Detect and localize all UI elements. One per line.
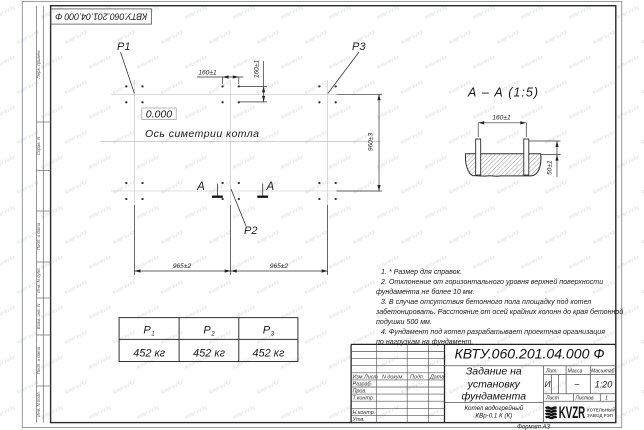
svg-text:Лист: Лист [545,396,559,402]
svg-text:960±3: 960±3 [368,133,375,152]
svg-text:kotel-kv.kz: kotel-kv.kz [304,79,329,95]
svg-text:kotel-kv.kz: kotel-kv.kz [256,29,281,45]
svg-text:kotel-kv.kz: kotel-kv.kz [424,104,449,120]
svg-text:kotel-kv.kz: kotel-kv.kz [352,179,377,195]
svg-text:Ось симетрии котла: Ось симетрии котла [145,128,259,140]
svg-text:kotel-kv.kz: kotel-kv.kz [424,54,449,70]
svg-text:kotel-kv.kz: kotel-kv.kz [304,179,329,195]
svg-text:kotel-kv.kz: kotel-kv.kz [280,404,305,420]
svg-text:kotel-kv.kz: kotel-kv.kz [40,204,65,220]
svg-text:kotel-kv.kz: kotel-kv.kz [640,179,644,195]
svg-text:kotel-kv.kz: kotel-kv.kz [40,254,65,270]
svg-text:Формат А3: Формат А3 [517,424,550,430]
svg-text:kotel-kv.kz: kotel-kv.kz [184,54,209,70]
svg-text:kotel-kv.kz: kotel-kv.kz [40,104,65,120]
svg-text:kotel-kv.kz: kotel-kv.kz [16,329,41,345]
svg-text:kotel-kv.kz: kotel-kv.kz [616,404,641,420]
svg-text:kotel-kv.kz: kotel-kv.kz [0,104,17,120]
svg-text:kotel-kv.kz: kotel-kv.kz [328,404,353,420]
svg-text:kotel-kv.kz: kotel-kv.kz [304,29,329,45]
svg-text:kotel-kv.kz: kotel-kv.kz [328,154,353,170]
svg-text:Масса: Масса [568,368,583,374]
svg-text:kotel-kv.kz: kotel-kv.kz [424,204,449,220]
svg-text:kotel-kv.kz: kotel-kv.kz [448,179,473,195]
svg-text:kotel-kv.kz: kotel-kv.kz [160,229,185,245]
svg-text:Р: Р [263,325,271,337]
svg-text:kotel-kv.kz: kotel-kv.kz [520,4,545,20]
svg-text:Задание на: Задание на [466,366,522,378]
svg-text:kotel-kv.kz: kotel-kv.kz [544,79,569,95]
svg-text:kotel-kv.kz: kotel-kv.kz [256,229,281,245]
svg-text:kotel-kv.kz: kotel-kv.kz [640,129,644,145]
svg-text:kotel-kv.kz: kotel-kv.kz [304,129,329,145]
svg-text:установку: установку [467,379,521,391]
svg-text:kotel-kv.kz: kotel-kv.kz [376,104,401,120]
svg-text:kotel-kv.kz: kotel-kv.kz [160,29,185,45]
svg-text:КОТЕЛЬНЫЙ: КОТЕЛЬНЫЙ [587,408,616,413]
svg-text:Инв. N подл.: Инв. N подл. [36,391,41,417]
svg-text:kotel-kv.kz: kotel-kv.kz [592,179,617,195]
svg-text:kotel-kv.kz: kotel-kv.kz [568,254,593,270]
svg-text:kotel-kv.kz: kotel-kv.kz [616,354,641,370]
svg-text:kotel-kv.kz: kotel-kv.kz [328,254,353,270]
svg-text:KVZR: KVZR [559,404,586,422]
svg-text:Листов: Листов [574,396,594,402]
svg-text:kotel-kv.kz: kotel-kv.kz [496,29,521,45]
svg-text:kotel-kv.kz: kotel-kv.kz [232,4,257,20]
svg-text:kotel-kv.kz: kotel-kv.kz [520,104,545,120]
svg-text:kotel-kv.kz: kotel-kv.kz [88,54,113,70]
svg-text:kotel-kv.kz: kotel-kv.kz [208,279,233,295]
svg-text:kotel-kv.kz: kotel-kv.kz [232,104,257,120]
svg-text:kotel-kv.kz: kotel-kv.kz [448,229,473,245]
svg-text:kotel-kv.kz: kotel-kv.kz [64,279,89,295]
svg-text:подушки 500 мм.: подушки 500 мм. [376,318,432,326]
svg-text:kotel-kv.kz: kotel-kv.kz [496,179,521,195]
svg-text:kotel-kv.kz: kotel-kv.kz [400,229,425,245]
svg-text:kotel-kv.kz: kotel-kv.kz [40,304,65,320]
svg-text:kotel-kv.kz: kotel-kv.kz [472,54,497,70]
svg-text:kotel-kv.kz: kotel-kv.kz [400,79,425,95]
svg-text:kotel-kv.kz: kotel-kv.kz [208,79,233,95]
svg-text:0.000: 0.000 [146,109,172,121]
svg-text:kotel-kv.kz: kotel-kv.kz [208,29,233,45]
svg-text:452 кг: 452 кг [252,348,285,360]
svg-text:kotel-kv.kz: kotel-kv.kz [160,79,185,95]
svg-text:А – А (1:5): А – А (1:5) [467,86,538,100]
svg-text:kotel-kv.kz: kotel-kv.kz [136,154,161,170]
svg-text:1: 1 [605,396,608,402]
svg-text:Масштаб: Масштаб [591,368,615,374]
svg-text:А: А [265,181,274,193]
svg-text:Инв. N дубл.: Инв. N дубл. [36,267,41,292]
svg-text:Разраб.: Разраб. [353,381,373,387]
svg-text:kotel-kv.kz: kotel-kv.kz [232,204,257,220]
svg-text:kotel-kv.kz: kotel-kv.kz [160,279,185,295]
svg-text:kotel-kv.kz: kotel-kv.kz [208,379,233,395]
svg-text:kotel-kv.kz: kotel-kv.kz [520,204,545,220]
svg-text:kotel-kv.kz: kotel-kv.kz [472,204,497,220]
svg-text:kotel-kv.kz: kotel-kv.kz [256,279,281,295]
svg-text:kotel-kv.kz: kotel-kv.kz [232,304,257,320]
svg-text:КВр-0,1 К (К): КВр-0,1 К (К) [475,413,512,420]
svg-text:kotel-kv.kz: kotel-kv.kz [0,304,17,320]
svg-text:kotel-kv.kz: kotel-kv.kz [280,304,305,320]
svg-text:kotel-kv.kz: kotel-kv.kz [640,379,644,395]
svg-text:kotel-kv.kz: kotel-kv.kz [616,204,641,220]
svg-text:kotel-kv.kz: kotel-kv.kz [616,104,641,120]
svg-text:Р3: Р3 [352,41,366,53]
svg-text:kotel-kv.kz: kotel-kv.kz [544,29,569,45]
svg-text:Справ. N: Справ. N [36,136,41,155]
svg-text:4. Фундамент под котел разраба: 4. Фундамент под котел разрабатывает про… [381,328,605,336]
svg-text:kotel-kv.kz: kotel-kv.kz [64,129,89,145]
svg-text:2. Отклонение от горизонтально: 2. Отклонение от горизонтального уровня … [380,278,603,286]
svg-text:kotel-kv.kz: kotel-kv.kz [112,79,137,95]
svg-text:kotel-kv.kz: kotel-kv.kz [376,4,401,20]
svg-text:Т.контр.: Т.контр. [353,396,375,402]
svg-text:kotel-kv.kz: kotel-kv.kz [280,4,305,20]
svg-text:Р: Р [203,325,211,337]
svg-text:1:20: 1:20 [595,379,613,389]
svg-text:Р2: Р2 [244,225,257,237]
svg-text:kotel-kv.kz: kotel-kv.kz [304,329,329,345]
svg-text:kotel-kv.kz: kotel-kv.kz [0,354,17,370]
svg-text:kotel-kv.kz: kotel-kv.kz [0,204,17,220]
svg-text:kotel-kv.kz: kotel-kv.kz [0,404,17,420]
svg-text:kotel-kv.kz: kotel-kv.kz [376,54,401,70]
svg-text:kotel-kv.kz: kotel-kv.kz [232,254,257,270]
svg-text:kotel-kv.kz: kotel-kv.kz [472,254,497,270]
svg-text:kotel-kv.kz: kotel-kv.kz [400,179,425,195]
svg-text:1: 1 [151,332,154,338]
svg-text:kotel-kv.kz: kotel-kv.kz [352,279,377,295]
svg-text:kotel-kv.kz: kotel-kv.kz [328,54,353,70]
svg-text:kotel-kv.kz: kotel-kv.kz [568,204,593,220]
svg-text:kotel-kv.kz: kotel-kv.kz [160,179,185,195]
svg-text:kotel-kv.kz: kotel-kv.kz [640,229,644,245]
svg-text:kotel-kv.kz: kotel-kv.kz [0,254,17,270]
svg-text:kotel-kv.kz: kotel-kv.kz [136,54,161,70]
svg-text:kotel-kv.kz: kotel-kv.kz [256,379,281,395]
svg-text:kotel-kv.kz: kotel-kv.kz [232,154,257,170]
svg-text:kotel-kv.kz: kotel-kv.kz [376,154,401,170]
svg-text:И: И [544,379,551,389]
svg-text:kotel-kv.kz: kotel-kv.kz [64,379,89,395]
svg-text:kotel-kv.kz: kotel-kv.kz [64,179,89,195]
svg-text:забетонировать. Расстояние от: забетонировать. Расстояние от осей крайн… [375,308,623,316]
svg-text:kotel-kv.kz: kotel-kv.kz [304,229,329,245]
svg-text:kotel-kv.kz: kotel-kv.kz [0,4,17,20]
svg-text:kotel-kv.kz: kotel-kv.kz [136,304,161,320]
svg-text:Р1: Р1 [117,41,130,53]
svg-text:kotel-kv.kz: kotel-kv.kz [88,154,113,170]
svg-text:kotel-kv.kz: kotel-kv.kz [352,79,377,95]
svg-text:kotel-kv.kz: kotel-kv.kz [616,4,641,20]
svg-text:Р: Р [143,325,151,337]
svg-text:kotel-kv.kz: kotel-kv.kz [184,104,209,120]
svg-text:Перв. примен.: Перв. примен. [36,49,41,78]
svg-text:1. * Размер для справок.: 1. * Размер для справок. [381,268,462,276]
svg-text:kotel-kv.kz: kotel-kv.kz [160,329,185,345]
svg-text:kotel-kv.kz: kotel-kv.kz [280,154,305,170]
svg-text:50±1: 50±1 [547,160,554,175]
svg-text:kotel-kv.kz: kotel-kv.kz [640,79,644,95]
svg-text:kotel-kv.kz: kotel-kv.kz [544,179,569,195]
svg-text:kotel-kv.kz: kotel-kv.kz [568,104,593,120]
svg-text:Подп. и дата: Подп. и дата [36,346,41,374]
svg-text:kotel-kv.kz: kotel-kv.kz [592,79,617,95]
svg-text:kotel-kv.kz: kotel-kv.kz [16,179,41,195]
svg-text:kotel-kv.kz: kotel-kv.kz [256,79,281,95]
svg-text:kotel-kv.kz: kotel-kv.kz [592,29,617,45]
svg-text:kotel-kv.kz: kotel-kv.kz [568,54,593,70]
svg-text:Пров.: Пров. [353,389,367,395]
svg-text:Утв.: Утв. [352,417,365,423]
svg-text:kotel-kv.kz: kotel-kv.kz [280,104,305,120]
svg-text:kotel-kv.kz: kotel-kv.kz [184,304,209,320]
svg-text:kotel-kv.kz: kotel-kv.kz [424,4,449,20]
svg-text:kotel-kv.kz: kotel-kv.kz [184,404,209,420]
svg-text:kotel-kv.kz: kotel-kv.kz [328,354,353,370]
svg-text:фундамента не более 10 мм.: фундамента не более 10 мм. [376,288,475,296]
svg-text:Изм.Лист: Изм.Лист [353,374,379,380]
svg-text:kotel-kv.kz: kotel-kv.kz [448,29,473,45]
svg-text:kotel-kv.kz: kotel-kv.kz [544,229,569,245]
svg-text:kotel-kv.kz: kotel-kv.kz [184,4,209,20]
svg-text:3. В случае отсутствия бетонно: 3. В случае отсутствия бетонного пола пл… [381,298,591,306]
svg-text:kotel-kv.kz: kotel-kv.kz [112,179,137,195]
svg-text:А: А [196,181,205,193]
svg-text:kotel-kv.kz: kotel-kv.kz [496,229,521,245]
svg-text:kotel-kv.kz: kotel-kv.kz [352,229,377,245]
svg-text:КВТУ.060.201.04.000 Ф: КВТУ.060.201.04.000 Ф [455,347,605,362]
svg-text:965±2: 965±2 [270,263,289,270]
svg-text:kotel-kv.kz: kotel-kv.kz [184,154,209,170]
svg-text:kotel-kv.kz: kotel-kv.kz [616,154,641,170]
svg-text:kotel-kv.kz: kotel-kv.kz [328,104,353,120]
svg-text:kotel-kv.kz: kotel-kv.kz [400,29,425,45]
svg-text:kotel-kv.kz: kotel-kv.kz [304,379,329,395]
svg-text:kotel-kv.kz: kotel-kv.kz [328,304,353,320]
svg-text:kotel-kv.kz: kotel-kv.kz [112,229,137,245]
svg-text:452 кг: 452 кг [193,348,226,360]
svg-text:kotel-kv.kz: kotel-kv.kz [232,404,257,420]
svg-text:kotel-kv.kz: kotel-kv.kz [0,54,17,70]
svg-text:фундамента: фундамента [462,390,527,402]
svg-text:160±1: 160±1 [492,115,511,122]
svg-text:kotel-kv.kz: kotel-kv.kz [136,254,161,270]
svg-text:ЗАВОД РЭП: ЗАВОД РЭП [587,413,613,418]
svg-text:kotel-kv.kz: kotel-kv.kz [208,229,233,245]
svg-text:kotel-kv.kz: kotel-kv.kz [64,329,89,345]
svg-text:–: – [574,379,580,389]
svg-text:kotel-kv.kz: kotel-kv.kz [472,4,497,20]
svg-text:Взам. инв. N: Взам. инв. N [36,303,41,329]
svg-text:kotel-kv.kz: kotel-kv.kz [568,154,593,170]
svg-text:kotel-kv.kz: kotel-kv.kz [304,279,329,295]
svg-text:kotel-kv.kz: kotel-kv.kz [88,354,113,370]
svg-text:Подп. и дата: Подп. и дата [36,222,41,250]
svg-text:160±1: 160±1 [198,70,217,77]
svg-text:kotel-kv.kz: kotel-kv.kz [592,229,617,245]
svg-text:kotel-kv.kz: kotel-kv.kz [160,379,185,395]
svg-text:kotel-kv.kz: kotel-kv.kz [88,104,113,120]
svg-text:kotel-kv.kz: kotel-kv.kz [376,404,401,420]
svg-text:kotel-kv.kz: kotel-kv.kz [640,29,644,45]
svg-text:kotel-kv.kz: kotel-kv.kz [0,154,17,170]
svg-text:kotel-kv.kz: kotel-kv.kz [376,354,401,370]
svg-text:kotel-kv.kz: kotel-kv.kz [64,29,89,45]
svg-text:kotel-kv.kz: kotel-kv.kz [184,204,209,220]
svg-text:160±1: 160±1 [254,60,261,79]
svg-text:kotel-kv.kz: kotel-kv.kz [88,404,113,420]
svg-text:kotel-kv.kz: kotel-kv.kz [208,179,233,195]
svg-text:kotel-kv.kz: kotel-kv.kz [352,329,377,345]
svg-text:kotel-kv.kz: kotel-kv.kz [400,129,425,145]
svg-text:Дата: Дата [429,374,444,380]
svg-text:Котел водогрейный: Котел водогрейный [464,405,523,412]
svg-text:kotel-kv.kz: kotel-kv.kz [112,379,137,395]
svg-text:kotel-kv.kz: kotel-kv.kz [640,279,644,295]
svg-text:kotel-kv.kz: kotel-kv.kz [40,54,65,70]
svg-text:kotel-kv.kz: kotel-kv.kz [592,129,617,145]
svg-text:kotel-kv.kz: kotel-kv.kz [520,254,545,270]
svg-text:kotel-kv.kz: kotel-kv.kz [400,379,425,395]
svg-text:kotel-kv.kz: kotel-kv.kz [424,154,449,170]
svg-text:452 кг: 452 кг [133,348,166,360]
svg-text:kotel-kv.kz: kotel-kv.kz [88,204,113,220]
svg-text:kotel-kv.kz: kotel-kv.kz [496,129,521,145]
svg-text:kotel-kv.kz: kotel-kv.kz [88,304,113,320]
svg-text:kotel-kv.kz: kotel-kv.kz [16,79,41,95]
svg-text:kotel-kv.kz: kotel-kv.kz [616,54,641,70]
svg-text:kotel-kv.kz: kotel-kv.kz [112,329,137,345]
svg-text:kotel-kv.kz: kotel-kv.kz [328,204,353,220]
svg-text:Подп.: Подп. [410,374,424,380]
svg-text:kotel-kv.kz: kotel-kv.kz [280,54,305,70]
svg-text:2: 2 [210,332,215,338]
svg-text:kotel-kv.kz: kotel-kv.kz [16,29,41,45]
svg-text:kotel-kv.kz: kotel-kv.kz [40,404,65,420]
svg-text:kotel-kv.kz: kotel-kv.kz [520,54,545,70]
svg-text:kotel-kv.kz: kotel-kv.kz [112,129,137,145]
svg-text:kotel-kv.kz: kotel-kv.kz [64,79,89,95]
svg-text:kotel-kv.kz: kotel-kv.kz [640,329,644,345]
svg-text:N докум.: N докум. [382,374,404,380]
svg-text:kotel-kv.kz: kotel-kv.kz [64,229,89,245]
svg-text:kotel-kv.kz: kotel-kv.kz [568,4,593,20]
svg-text:КВТУ.060.201.04.000 Ф: КВТУ.060.201.04.000 Ф [55,11,147,21]
svg-text:kotel-kv.kz: kotel-kv.kz [328,4,353,20]
svg-text:kotel-kv.kz: kotel-kv.kz [136,404,161,420]
svg-text:kotel-kv.kz: kotel-kv.kz [40,154,65,170]
svg-text:965±2: 965±2 [173,263,192,270]
svg-text:kotel-kv.kz: kotel-kv.kz [376,204,401,220]
svg-text:kotel-kv.kz: kotel-kv.kz [520,404,545,420]
svg-text:kotel-kv.kz: kotel-kv.kz [88,254,113,270]
svg-text:kotel-kv.kz: kotel-kv.kz [256,129,281,145]
svg-text:kotel-kv.kz: kotel-kv.kz [40,354,65,370]
svg-text:Н.контр.: Н.контр. [353,410,376,416]
svg-text:kotel-kv.kz: kotel-kv.kz [616,254,641,270]
svg-text:kotel-kv.kz: kotel-kv.kz [448,129,473,145]
svg-text:Лит.: Лит. [545,368,558,374]
svg-text:kotel-kv.kz: kotel-kv.kz [280,204,305,220]
svg-text:kotel-kv.kz: kotel-kv.kz [112,279,137,295]
svg-text:kotel-kv.kz: kotel-kv.kz [136,204,161,220]
